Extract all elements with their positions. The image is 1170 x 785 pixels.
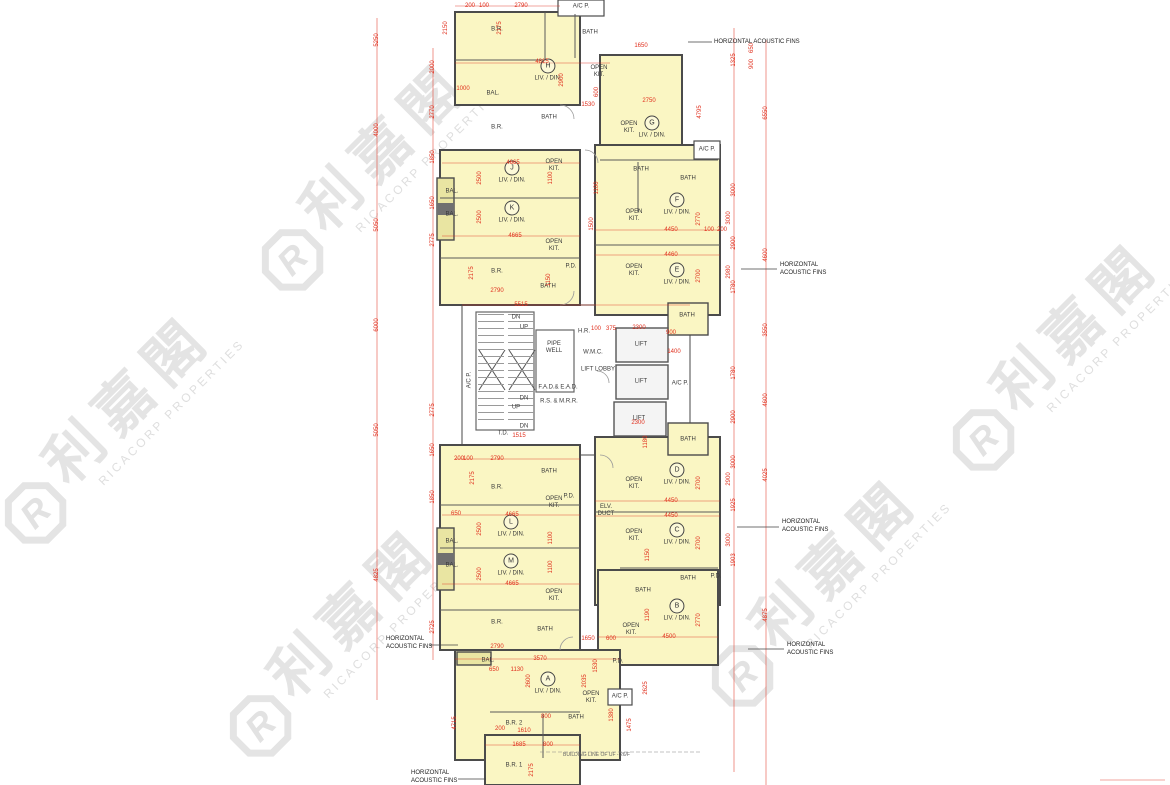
acoustic-fins-annotation: HORIZONTAL ACOUSTIC FINS xyxy=(782,519,834,534)
acoustic-fins-annotation: HORIZONTAL ACOUSTIC FINS xyxy=(411,770,463,785)
floor-plan-canvas: R 利嘉閣 RICACORP PROPERTIES R 利嘉閣 RICACORP… xyxy=(0,0,1170,785)
building-line-note: BUILDING LINE OF UF - 26/F xyxy=(563,752,630,758)
acoustic-fins-annotation: HORIZONTAL ACOUSTIC FINS xyxy=(714,39,829,47)
acoustic-fins-annotation: HORIZONTAL ACOUSTIC FINS xyxy=(780,262,832,277)
annotation-layer: HORIZONTAL ACOUSTIC FINSHORIZONTAL ACOUS… xyxy=(0,0,1170,785)
acoustic-fins-annotation: HORIZONTAL ACOUSTIC FINS xyxy=(787,642,839,657)
acoustic-fins-annotation: HORIZONTAL ACOUSTIC FINS xyxy=(386,636,438,651)
